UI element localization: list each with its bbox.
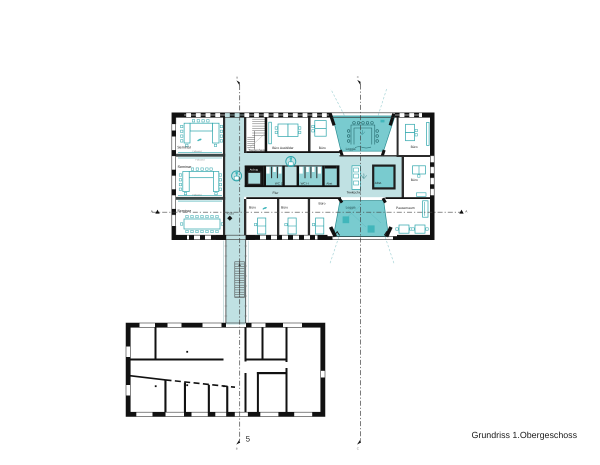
svg-text:Faltwand: Faltwand [196,158,206,161]
svg-text:Büro: Büro [319,146,326,150]
svg-text:Büro: Büro [411,145,418,149]
svg-text:WC H: WC H [301,182,309,186]
svg-text:Aufzug: Aufzug [250,168,259,171]
svg-text:Grundriss 1.Obergeschoss: Grundriss 1.Obergeschoss [472,430,578,440]
svg-text:5: 5 [246,435,251,444]
svg-text:Seminar: Seminar [178,165,193,169]
svg-text:Büro: Büro [249,206,256,210]
svg-text:Loggia: Loggia [346,147,356,151]
svg-text:Abst: Abst [326,182,332,186]
svg-text:B: B [236,447,238,451]
svg-text:Büro: Büro [411,178,418,182]
svg-text:Abst.: Abst. [375,181,382,185]
svg-text:WC D: WC D [275,182,284,186]
svg-text:Pausenraum: Pausenraum [396,206,415,210]
svg-text:Teeküche: Teeküche [347,190,361,194]
svg-text:Faltwand: Faltwand [193,193,203,196]
svg-text:Faltwand: Faltwand [193,150,203,153]
svg-text:Büro Ausbilder: Büro Ausbilder [272,146,294,150]
svg-text:Loggia: Loggia [346,205,356,209]
svg-text:C: C [357,75,359,79]
svg-text:C: C [357,447,359,451]
svg-text:Büro: Büro [281,206,288,210]
svg-text:Seminar: Seminar [177,145,192,149]
svg-text:Flur: Flur [273,191,280,195]
svg-text:B: B [236,76,238,80]
svg-text:Büro: Büro [319,202,326,206]
